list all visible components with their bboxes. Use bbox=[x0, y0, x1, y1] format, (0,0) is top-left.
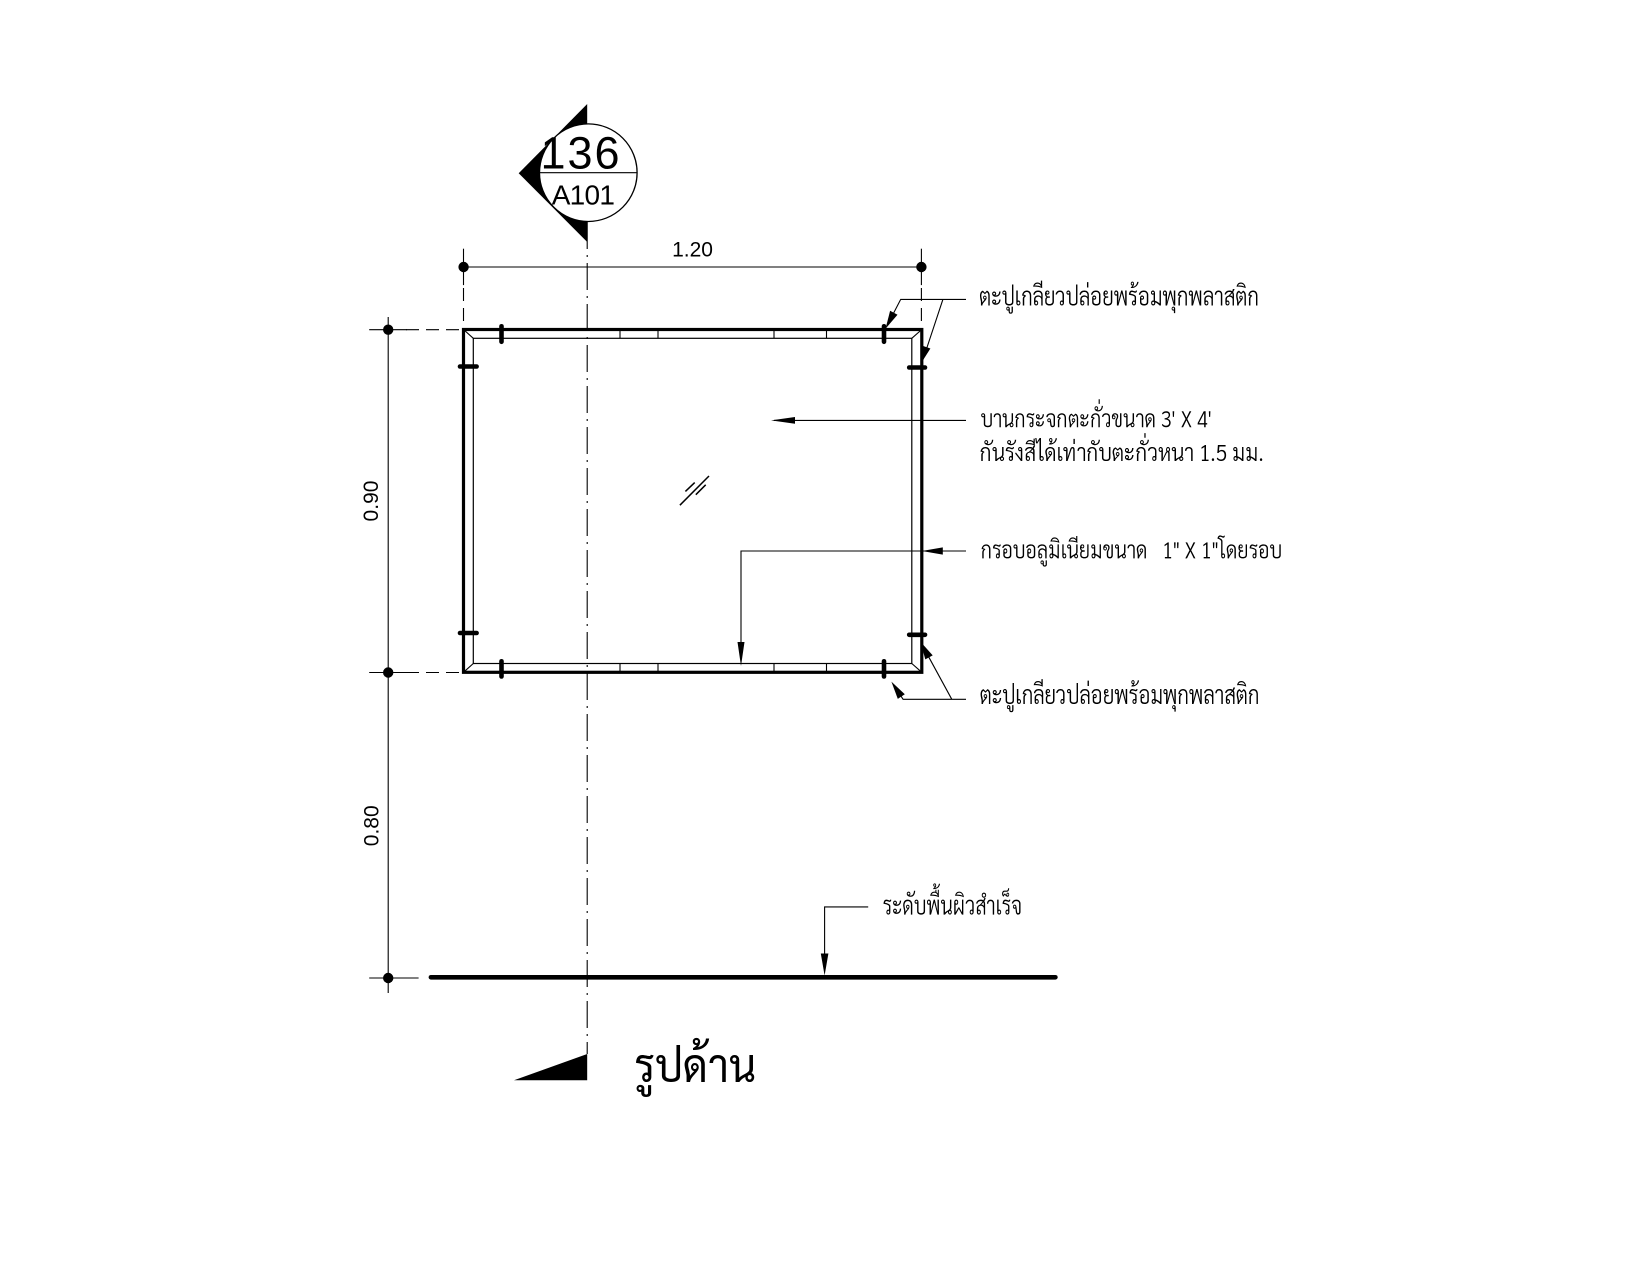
svg-text:0.80: 0.80 bbox=[361, 805, 384, 846]
svg-text:1.20: 1.20 bbox=[672, 238, 713, 261]
svg-text:136: 136 bbox=[540, 128, 621, 179]
svg-text:0.90: 0.90 bbox=[360, 481, 383, 522]
svg-text:A101: A101 bbox=[552, 180, 615, 211]
